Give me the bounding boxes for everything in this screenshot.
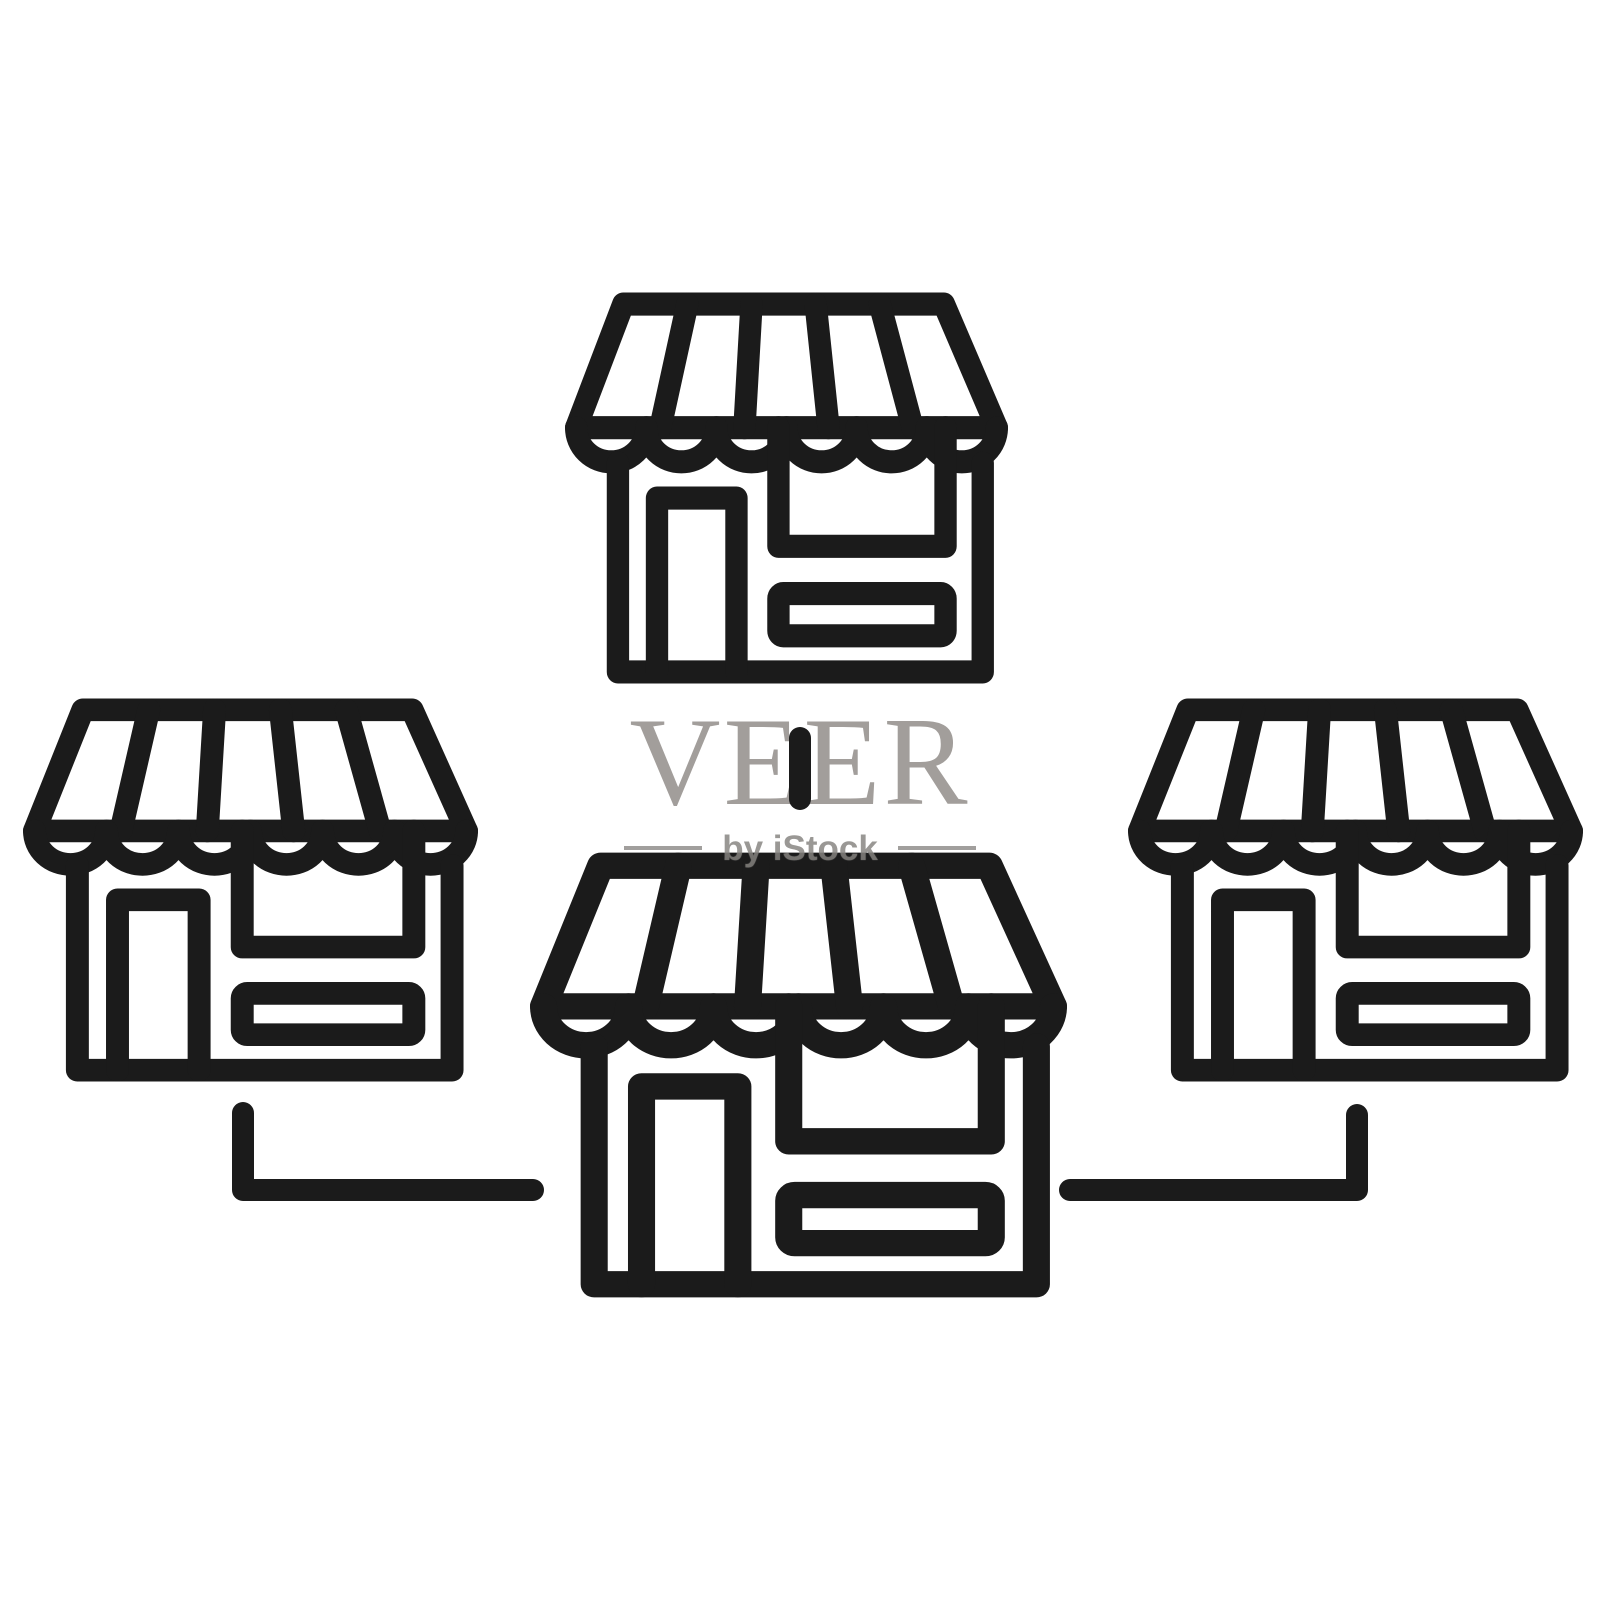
connector-right-to-center	[1070, 1115, 1357, 1190]
connector-left-to-center	[243, 1113, 533, 1190]
stock-image-canvas: VEER by iStock	[0, 0, 1600, 1600]
connector-lines	[0, 0, 1600, 1600]
